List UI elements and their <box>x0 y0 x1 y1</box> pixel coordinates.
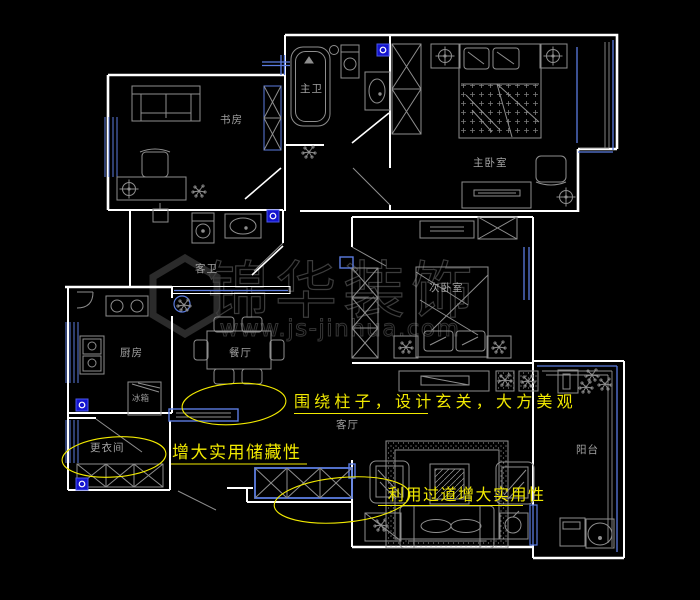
blue-marker-icon <box>76 399 88 411</box>
room-label-guest-bath: 客卫 <box>195 262 218 275</box>
room-label-living: 客厅 <box>336 418 359 431</box>
room-label-kitchen: 厨房 <box>120 346 143 359</box>
blue-marker-icon <box>377 44 389 56</box>
room-label-master-bedroom: 主卧室 <box>473 156 508 169</box>
blue-marker-icon <box>76 478 88 490</box>
blue-marker-icon <box>267 210 279 222</box>
room-label-study: 书房 <box>220 113 243 126</box>
annotation-text-hallway: 利用过道增大实用性 <box>388 485 546 504</box>
room-label-master-bath: 主卫 <box>300 83 323 95</box>
room-label-balcony: 阳台 <box>576 443 599 456</box>
room-label-dressing: 更衣间 <box>90 441 125 454</box>
cad-floorplan-window: 锦华装饰 www.js-jinhua.com <box>0 0 700 600</box>
room-label-fridge: 冰箱 <box>132 393 150 404</box>
room-label-second-bedroom: 次卧室 <box>429 281 464 294</box>
room-label-dining: 餐厅 <box>229 346 252 359</box>
floorplan-canvas[interactable]: 锦华装饰 www.js-jinhua.com <box>0 0 700 600</box>
annotation-text-entry: 围绕柱子，设计玄关，大方美观 <box>294 392 577 411</box>
annotation-text-storage: 增大实用储藏性 <box>172 443 302 463</box>
